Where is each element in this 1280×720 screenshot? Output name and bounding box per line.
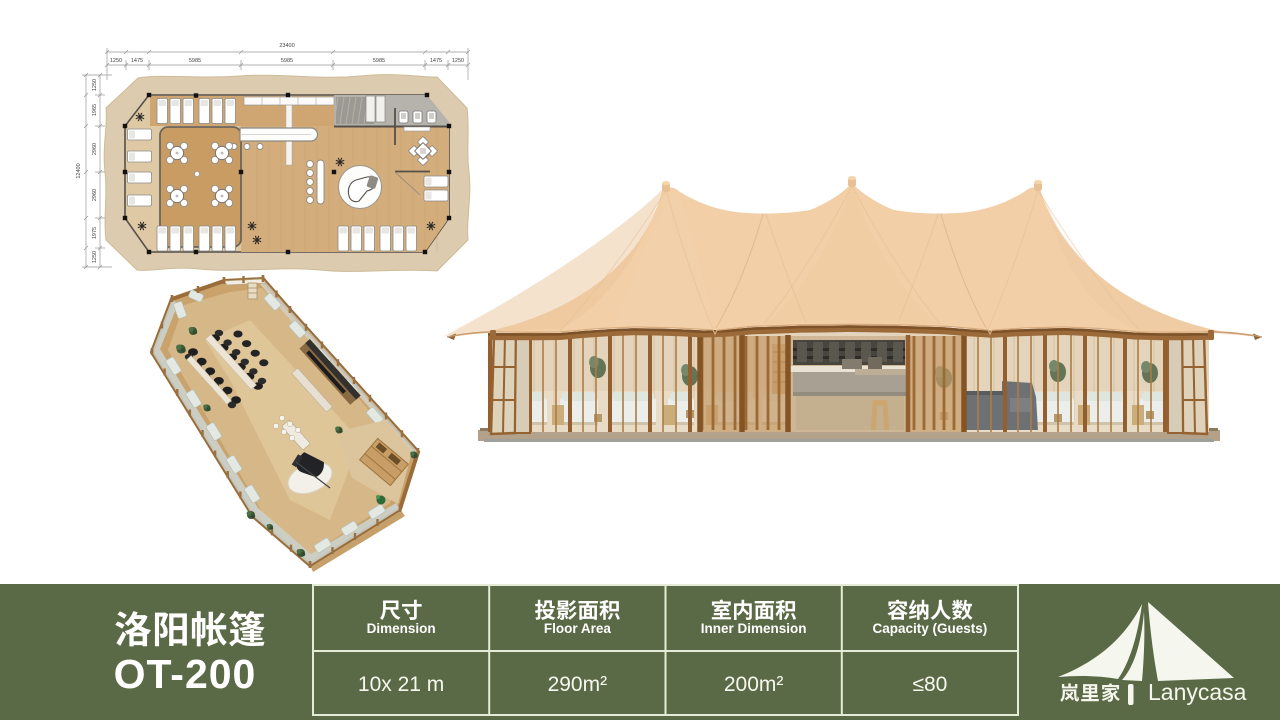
svg-text:Dimension: Dimension: [367, 621, 436, 636]
svg-text:2960: 2960: [92, 189, 98, 201]
svg-text:Inner Dimension: Inner Dimension: [701, 621, 807, 636]
svg-text:Capacity (Guests): Capacity (Guests): [873, 621, 988, 636]
svg-text:1475: 1475: [430, 58, 442, 64]
svg-text:200m²: 200m²: [724, 673, 784, 696]
svg-text:5985: 5985: [373, 58, 385, 64]
svg-text:1475: 1475: [131, 58, 143, 64]
svg-text:≤80: ≤80: [912, 673, 947, 696]
svg-text:12400: 12400: [76, 163, 82, 178]
svg-text:2960: 2960: [92, 143, 98, 155]
svg-text:Lanycasa: Lanycasa: [1148, 679, 1247, 705]
svg-text:1250: 1250: [110, 58, 122, 64]
svg-text:OT-200: OT-200: [114, 651, 257, 697]
svg-text:290m²: 290m²: [548, 673, 608, 696]
svg-text:Floor Area: Floor Area: [544, 621, 612, 636]
svg-text:23400: 23400: [279, 43, 294, 49]
svg-text:1250: 1250: [452, 58, 464, 64]
svg-text:1250: 1250: [92, 79, 98, 91]
svg-text:5985: 5985: [189, 58, 201, 64]
svg-text:1965: 1965: [92, 104, 98, 116]
svg-text:10x 21 m: 10x 21 m: [358, 673, 444, 696]
svg-text:1975: 1975: [92, 227, 98, 239]
svg-text:1250: 1250: [92, 251, 98, 263]
svg-text:5985: 5985: [281, 58, 293, 64]
